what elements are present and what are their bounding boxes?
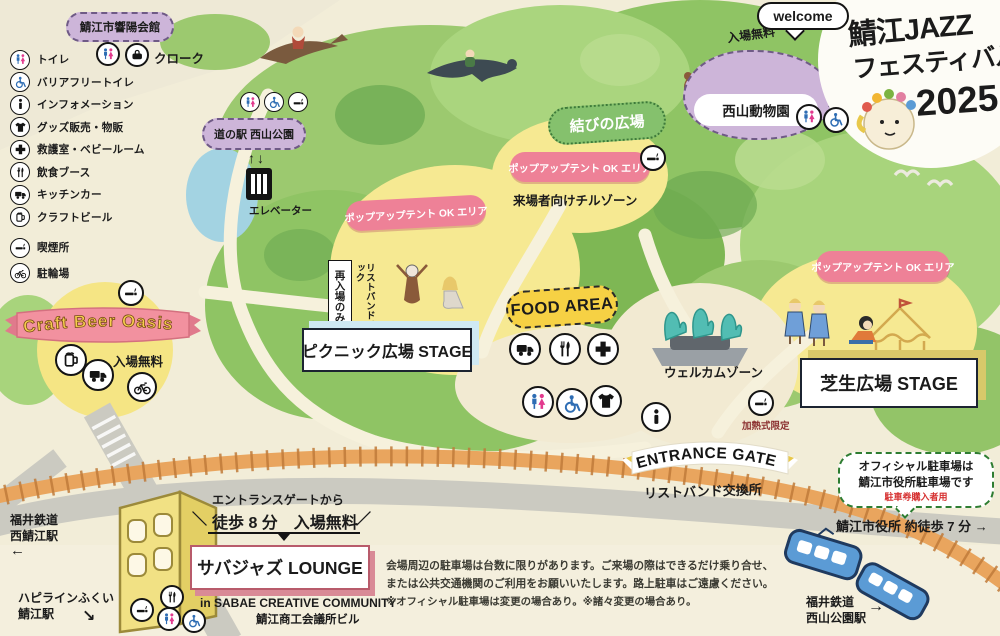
legend-label: グッズ販売・物販 — [37, 120, 123, 135]
shibafu-stage-label: 芝生広場 STAGE — [820, 370, 958, 396]
legend-row: クラフトビール — [10, 208, 145, 227]
smoking-icon — [10, 238, 30, 258]
craft-beer-banner: Craft Beer Oasis — [5, 300, 201, 352]
emphasis-slash: ＼ — [192, 508, 207, 529]
food-booth-icon — [160, 585, 184, 609]
legend: トイレ バリアフリートイレ インフォメーション グッズ販売・物販 救護室・ベビー… — [10, 50, 145, 283]
popup-tent-bubble: ポップアップテント OK エリア — [510, 152, 650, 182]
smoking-icon — [748, 390, 774, 416]
craft-free-label: 入場無料 — [113, 351, 163, 370]
legend-label: 駐輪場 — [37, 266, 69, 281]
toilet-icon — [157, 607, 181, 631]
food-area-label: FOOD AREA — [510, 294, 614, 320]
craft-beer-icon — [10, 207, 30, 227]
smoking-icon — [640, 145, 666, 171]
toilet-icon — [796, 104, 822, 130]
popup-tent-label: ポップアップテント OK エリア — [344, 202, 488, 224]
lounge-box: サバジャズ LOUNGE — [190, 545, 370, 590]
lounge-walk-label: 徒歩 8 分 入場無料 — [212, 509, 358, 533]
welcome-label: welcome — [773, 8, 832, 24]
legend-label: 救護室・ベビールーム — [37, 142, 145, 157]
happiline-station-label: ハピラインふくい 鯖江駅 — [18, 590, 114, 622]
entrance-gate-banner: ENTRANCE GATE — [620, 428, 800, 488]
arrow-right: → — [868, 598, 884, 616]
lounge-from-label: エントランスゲートから — [212, 491, 344, 508]
welcome-bubble: welcome — [757, 2, 849, 30]
parking-line1: オフィシャル駐車場は — [859, 458, 974, 474]
fountain-illustration — [652, 309, 748, 366]
nishisabae-station-label: 福井鉄道 西鯖江駅 ← — [10, 512, 58, 558]
elevator-icon — [246, 168, 272, 200]
legend-label: 喫煙所 — [37, 240, 69, 255]
info-icon — [641, 402, 671, 432]
festival-map: トイレ バリアフリートイレ インフォメーション グッズ販売・物販 救護室・ベビー… — [0, 0, 1000, 636]
notice-line: または公共交通機関のご利用をお願いいたします。路上駐車はご遠慮ください。 — [386, 576, 796, 594]
food-area-bubble: FOOD AREA — [505, 284, 619, 330]
first-aid-icon — [587, 333, 619, 365]
wheelchair-icon — [556, 388, 588, 420]
logo-face-illustration — [846, 82, 932, 154]
kitchen-car-icon — [10, 185, 30, 205]
official-parking-bubble: オフィシャル駐車場は 鯖江市役所駐車場です 駐車券購入者用 — [838, 452, 994, 508]
cityhall-label: 鯖江市役所 約徒歩 7 分 → — [836, 516, 988, 535]
chill-zone-label: 来場者向けチルゾーン — [513, 190, 637, 209]
notice-line: 会場周辺の駐車場は台数に限りがあります。ご来場の際はできるだけ乗り合せ、 — [386, 558, 796, 576]
parking-note: 駐車券購入者用 — [884, 490, 947, 503]
popup-tent-label: ポップアップテント OK エリア — [811, 259, 954, 274]
legend-row: 救護室・ベビールーム — [10, 140, 145, 159]
info-icon — [10, 95, 30, 115]
legend-label: トイレ — [37, 52, 69, 67]
goods-icon — [590, 385, 622, 417]
kitchen-car-icon — [82, 359, 114, 391]
toilet-icon — [522, 386, 554, 418]
legend-label: キッチンカー — [37, 187, 102, 202]
reentry-label: 再入場のみ — [333, 270, 348, 323]
arrow-downright: ↘ — [82, 606, 95, 626]
legend-label: インフォメーション — [37, 97, 134, 112]
first-aid-icon — [10, 140, 30, 160]
legend-row: グッズ販売・物販 — [10, 118, 145, 137]
shibafu-stage-box: 芝生広場 STAGE — [800, 358, 978, 408]
popup-tent-bubble: ポップアップテント OK エリア — [816, 251, 950, 282]
food-booth-icon — [549, 333, 581, 365]
legend-row: 喫煙所 — [10, 238, 145, 257]
wheelchair-icon — [182, 609, 206, 633]
legend-row: 飲食ブース — [10, 163, 145, 182]
welcome-zone-label: ウェルカムゾーン — [664, 362, 763, 381]
bicycle-icon — [10, 263, 30, 283]
wheelchair-icon — [264, 92, 284, 112]
legend-row: バリアフリートイレ — [10, 73, 145, 92]
lounge-building-label: 鯖江商工会議所ビル — [256, 611, 360, 627]
cloak-label: クローク — [154, 48, 204, 67]
musubi-plaza-label: 結びの広場 — [569, 110, 645, 136]
pointer-arrow — [278, 534, 290, 541]
reentry-banner: 再入場のみ — [328, 260, 352, 332]
notice-line: ※オフィシャル駐車場は変更の場合あり。※諸々変更の場合あり。 — [386, 594, 796, 611]
popup-tent-label: ポップアップテント OK エリア — [508, 160, 651, 175]
legend-label: クラフトビール — [37, 210, 113, 225]
picnic-stage-label: ピクニック広場 STAGE — [302, 338, 472, 362]
goods-icon — [10, 117, 30, 137]
smoking-icon — [118, 280, 144, 306]
parking-notice: 会場周辺の駐車場は台数に限りがあります。ご来場の際はできるだけ乗り合せ、 または… — [386, 558, 796, 611]
emphasis-slash: ／ — [356, 508, 371, 529]
legend-row: インフォメーション — [10, 95, 145, 114]
toilet-icon — [10, 50, 30, 70]
elevator-arrows: ↑↓ — [248, 150, 266, 166]
arrow-left: ← — [10, 544, 58, 558]
legend-label: バリアフリートイレ — [37, 75, 134, 90]
lounge-label: サバジャズ LOUNGE — [197, 555, 363, 580]
legend-row: 駐輪場 — [10, 264, 145, 283]
toilet-icon — [240, 92, 260, 112]
picnic-stage-box: ピクニック広場 STAGE — [302, 328, 472, 372]
cloak-icon — [125, 43, 149, 67]
kyoyo-kaikan-label: 鯖江市響陽会館 — [80, 19, 161, 35]
legend-label: 飲食ブース — [37, 165, 90, 180]
elevator-label: エレベーター — [249, 203, 312, 218]
smoking-icon — [288, 92, 308, 112]
food-booth-icon — [10, 162, 30, 182]
parking-line2: 鯖江市役所駐車場です — [859, 474, 974, 490]
legend-row: キッチンカー — [10, 185, 145, 204]
bicycle-icon — [127, 372, 157, 402]
nishiyamakoen-station-label: 福井鉄道 西山公園駅 — [806, 594, 866, 626]
kitchen-car-icon — [509, 333, 541, 365]
michinoeki-bubble: 道の駅 西山公園 — [202, 118, 306, 150]
smoking-icon — [130, 598, 154, 622]
lounge-community-label: in SABAE CREATIVE COMMUNITY — [200, 596, 396, 610]
michinoeki-label: 道の駅 西山公園 — [214, 126, 294, 142]
wheelchair-icon — [10, 72, 30, 92]
toilet-icon — [96, 42, 120, 66]
zoo-name-label: 西山動物園 — [722, 100, 790, 120]
arrow-right: → — [975, 519, 988, 534]
kyoyo-kaikan-bubble: 鯖江市響陽会館 — [66, 12, 174, 42]
